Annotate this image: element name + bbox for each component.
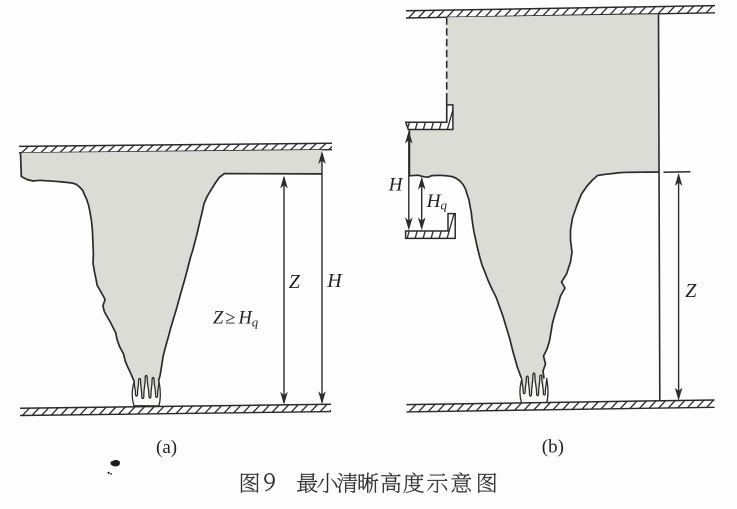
svg-text:H: H bbox=[326, 270, 343, 292]
svg-text:Z: Z bbox=[685, 280, 697, 302]
svg-text:Z: Z bbox=[289, 271, 301, 293]
svg-text:H: H bbox=[388, 174, 404, 195]
svg-text:(a): (a) bbox=[156, 437, 177, 458]
svg-text:(b): (b) bbox=[542, 437, 564, 458]
